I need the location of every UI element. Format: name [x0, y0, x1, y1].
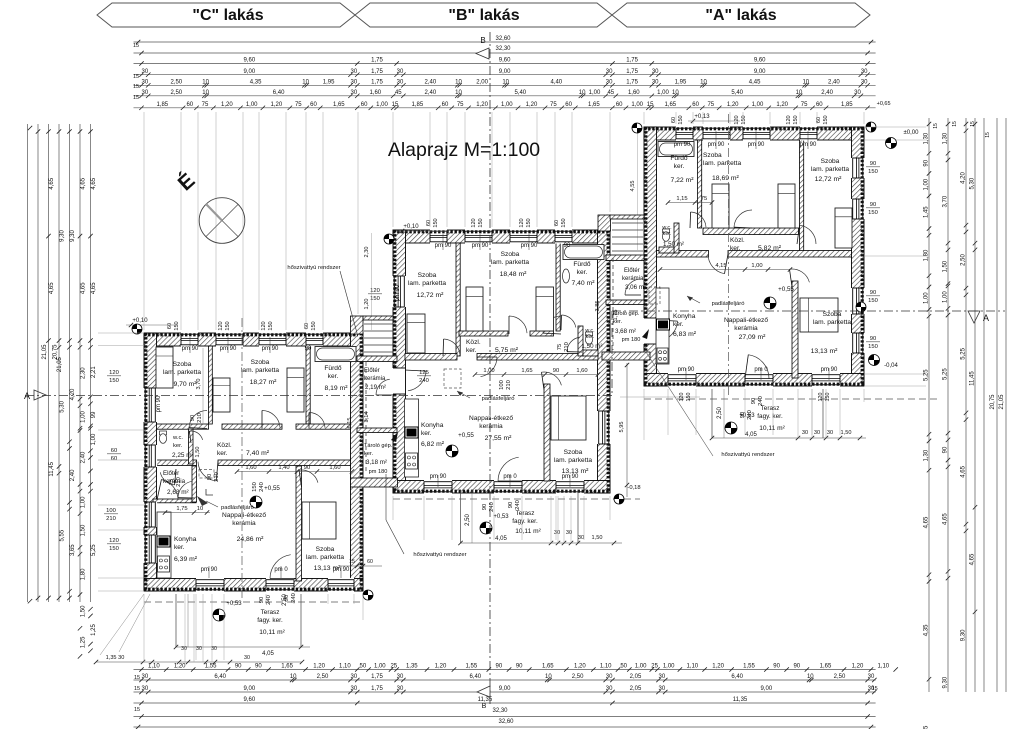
svg-text:1,55: 1,55	[205, 664, 217, 670]
svg-text:1,65: 1,65	[542, 664, 554, 670]
svg-text:Közl.: Közl.	[730, 237, 745, 244]
svg-text:Konyha: Konyha	[673, 313, 696, 320]
svg-text:1,80: 1,80	[924, 249, 930, 261]
svg-text:4,65: 4,65	[943, 513, 949, 525]
svg-text:10,11 m²: 10,11 m²	[759, 425, 785, 432]
svg-text:10: 10	[202, 90, 209, 96]
svg-text:1,00: 1,00	[501, 102, 513, 108]
svg-text:90: 90	[793, 664, 800, 670]
svg-text:90: 90	[482, 504, 488, 510]
svg-text:90: 90	[924, 159, 930, 166]
svg-text:13,13 m²: 13,13 m²	[811, 348, 839, 355]
svg-text:1,35: 1,35	[406, 664, 418, 670]
svg-text:210: 210	[564, 342, 570, 352]
svg-text:10: 10	[455, 90, 462, 96]
svg-text:30: 30	[606, 69, 613, 75]
svg-text:1,75: 1,75	[626, 80, 638, 86]
svg-text:1,40: 1,40	[278, 465, 289, 471]
svg-text:6,83 m²: 6,83 m²	[673, 331, 697, 338]
svg-text:60: 60	[167, 323, 173, 329]
svg-text:2,21: 2,21	[91, 366, 97, 378]
svg-text:9,60: 9,60	[499, 58, 511, 64]
svg-text:30: 30	[606, 674, 613, 680]
svg-text:75: 75	[707, 102, 714, 108]
svg-text:75: 75	[169, 479, 175, 485]
svg-text:1,20: 1,20	[221, 102, 233, 108]
svg-text:1,50: 1,50	[195, 447, 201, 458]
svg-text:12,72 m²: 12,72 m²	[417, 292, 445, 299]
svg-text:1,50 m²: 1,50 m²	[582, 343, 603, 350]
svg-text:kerámia: kerámia	[232, 520, 256, 527]
svg-text:kerámia: kerámia	[364, 376, 386, 382]
svg-text:30: 30	[868, 686, 875, 692]
svg-text:1,20: 1,20	[476, 102, 488, 108]
svg-text:1,75: 1,75	[371, 69, 383, 75]
svg-text:3,68 m²: 3,68 m²	[615, 328, 636, 335]
svg-text:kerámia: kerámia	[734, 325, 758, 332]
svg-text:1,00: 1,00	[246, 102, 258, 108]
svg-text:pm 0: pm 0	[754, 367, 768, 373]
svg-text:9,60: 9,60	[244, 697, 256, 703]
svg-text:9,60: 9,60	[244, 58, 256, 64]
svg-text:4,05: 4,05	[495, 536, 507, 542]
svg-text:6,15: 6,15	[347, 418, 353, 429]
svg-text:5,82 m²: 5,82 m²	[758, 245, 782, 252]
svg-text:1,25: 1,25	[91, 624, 97, 636]
svg-text:240: 240	[266, 595, 272, 605]
svg-text:9,00: 9,00	[754, 69, 766, 75]
svg-text:lam. parketta: lam. parketta	[163, 369, 201, 376]
svg-text:30: 30	[142, 80, 149, 86]
svg-text:ker.: ker.	[328, 373, 339, 380]
svg-text:60: 60	[616, 102, 623, 108]
svg-text:1,20: 1,20	[776, 102, 788, 108]
svg-text:15: 15	[134, 686, 140, 692]
svg-text:90: 90	[496, 664, 503, 670]
svg-text:15: 15	[134, 707, 140, 713]
svg-text:±0,00: ±0,00	[904, 130, 920, 136]
svg-text:4,35: 4,35	[250, 80, 262, 86]
svg-text:90: 90	[508, 502, 514, 508]
svg-text:fagy. ker.: fagy. ker.	[757, 413, 783, 420]
svg-text:pm 0: pm 0	[274, 567, 288, 573]
svg-text:Előtér: Előtér	[163, 470, 179, 477]
svg-text:+0,53: +0,53	[226, 601, 242, 607]
svg-text:15: 15	[133, 74, 139, 80]
svg-text:240: 240	[419, 378, 429, 384]
svg-text:1,20: 1,20	[727, 102, 739, 108]
svg-text:7,40 m²: 7,40 m²	[571, 280, 595, 287]
svg-text:10: 10	[807, 674, 814, 680]
svg-text:120: 120	[679, 393, 685, 402]
svg-text:pm 90: pm 90	[430, 474, 447, 480]
svg-text:Nappali-étkező: Nappali-étkező	[469, 415, 513, 422]
svg-text:30: 30	[142, 686, 149, 692]
svg-text:4,65: 4,65	[924, 516, 930, 528]
svg-text:-0,18: -0,18	[627, 485, 640, 491]
svg-text:15: 15	[133, 84, 139, 90]
svg-text:210: 210	[106, 516, 116, 522]
svg-text:9,70 m²: 9,70 m²	[173, 381, 197, 388]
svg-text:30: 30	[868, 674, 875, 680]
svg-text:2,30: 2,30	[364, 247, 370, 258]
svg-text:1,00: 1,00	[589, 90, 601, 96]
svg-text:30: 30	[578, 535, 584, 541]
svg-text:1,95: 1,95	[323, 80, 335, 86]
svg-text:12,72 m²: 12,72 m²	[815, 176, 843, 183]
svg-text:90: 90	[870, 336, 876, 342]
svg-text:3,70: 3,70	[943, 195, 949, 207]
svg-text:lam. parketta: lam. parketta	[241, 367, 279, 374]
svg-text:75: 75	[295, 102, 302, 108]
svg-text:1,30: 1,30	[924, 132, 930, 144]
svg-text:1,30: 1,30	[943, 132, 949, 144]
svg-text:60: 60	[304, 323, 310, 329]
svg-text:1,60: 1,60	[628, 90, 640, 96]
svg-text:20,75: 20,75	[53, 344, 59, 360]
svg-text:Szoba: Szoba	[418, 272, 437, 279]
svg-text:30: 30	[142, 674, 149, 680]
svg-text:1,65: 1,65	[820, 664, 832, 670]
svg-text:2,63 m²: 2,63 m²	[167, 489, 189, 496]
svg-text:1,60: 1,60	[245, 465, 256, 471]
svg-text:Szoba: Szoba	[564, 449, 583, 456]
svg-text:1,85: 1,85	[841, 102, 853, 108]
svg-text:60: 60	[111, 456, 117, 462]
svg-text:5,25: 5,25	[943, 368, 949, 380]
svg-text:1,65: 1,65	[521, 368, 532, 374]
svg-text:4,45: 4,45	[749, 80, 761, 86]
svg-text:4,55: 4,55	[630, 181, 636, 192]
svg-text:1,20: 1,20	[313, 664, 325, 670]
svg-text:2,50: 2,50	[317, 674, 329, 680]
svg-text:hőszivattyú rendszer: hőszivattyú rendszer	[721, 452, 774, 458]
svg-text:2,50: 2,50	[170, 90, 182, 96]
svg-text:90: 90	[284, 595, 290, 601]
svg-text:1,00: 1,00	[943, 291, 949, 303]
svg-text:pm 90: pm 90	[472, 243, 489, 249]
svg-text:1,00: 1,00	[483, 368, 494, 374]
svg-text:15: 15	[933, 123, 939, 129]
svg-text:1,20: 1,20	[364, 299, 370, 310]
svg-text:60: 60	[310, 102, 317, 108]
svg-text:6,40: 6,40	[214, 674, 226, 680]
svg-text:75: 75	[550, 102, 557, 108]
svg-text:2,05: 2,05	[630, 686, 642, 692]
svg-text:4,20: 4,20	[70, 388, 76, 400]
svg-text:-0,04: -0,04	[884, 363, 898, 369]
svg-text:60: 60	[565, 102, 572, 108]
svg-text:120: 120	[519, 218, 525, 227]
svg-text:ker.: ker.	[466, 347, 477, 354]
svg-text:30: 30	[606, 80, 613, 86]
svg-text:1,50: 1,50	[592, 535, 603, 541]
svg-text:4,40: 4,40	[550, 80, 562, 86]
svg-text:padlásfeljáró: padlásfeljáró	[221, 505, 254, 511]
svg-text:5,30: 5,30	[60, 400, 66, 412]
svg-text:60: 60	[111, 448, 117, 454]
svg-text:+0,55: +0,55	[458, 432, 474, 439]
svg-text:45: 45	[607, 90, 614, 96]
svg-text:Fürdő: Fürdő	[670, 155, 688, 162]
svg-text:210: 210	[506, 380, 512, 390]
svg-text:90: 90	[259, 597, 265, 603]
svg-text:1,00: 1,00	[657, 90, 669, 96]
svg-text:15: 15	[133, 43, 139, 49]
svg-text:30: 30	[554, 530, 560, 536]
svg-text:150: 150	[561, 218, 567, 227]
svg-text:90: 90	[870, 161, 876, 167]
svg-text:fagy. ker.: fagy. ker.	[257, 617, 283, 624]
svg-text:1,75: 1,75	[371, 58, 383, 64]
svg-text:pm 180: pm 180	[369, 469, 388, 475]
svg-text:1,75: 1,75	[626, 69, 638, 75]
svg-text:Szoba: Szoba	[251, 359, 270, 366]
svg-text:4,65: 4,65	[81, 177, 87, 189]
svg-text:pm 90: pm 90	[395, 284, 401, 301]
svg-text:ker.: ker.	[364, 451, 373, 457]
svg-text:30: 30	[861, 80, 868, 86]
svg-text:100: 100	[106, 508, 116, 514]
svg-text:90: 90	[255, 664, 262, 670]
svg-text:75: 75	[801, 102, 808, 108]
svg-text:3,65: 3,65	[70, 544, 76, 556]
svg-text:11,45: 11,45	[970, 371, 976, 386]
svg-text:ker.: ker.	[674, 163, 685, 170]
svg-text:2,40: 2,40	[425, 90, 437, 96]
svg-text:90: 90	[564, 243, 571, 249]
svg-text:1,00: 1,00	[91, 433, 97, 445]
svg-text:30: 30	[397, 674, 404, 680]
svg-text:1,75: 1,75	[371, 686, 383, 692]
svg-text:10: 10	[796, 90, 803, 96]
svg-text:ker.: ker.	[663, 231, 672, 237]
svg-text:1,65: 1,65	[588, 102, 600, 108]
svg-text:1,20: 1,20	[526, 102, 538, 108]
svg-text:10: 10	[700, 80, 707, 86]
svg-text:150: 150	[252, 482, 258, 492]
svg-text:9,30: 9,30	[961, 629, 967, 641]
svg-text:Közl.: Közl.	[217, 442, 232, 449]
svg-text:2,40: 2,40	[81, 451, 87, 463]
svg-text:1,10: 1,10	[339, 664, 351, 670]
svg-text:1,60: 1,60	[369, 90, 381, 96]
svg-text:1,00: 1,00	[635, 664, 647, 670]
svg-text:9,30: 9,30	[60, 230, 66, 242]
svg-text:Közl.: Közl.	[466, 339, 481, 346]
svg-text:150: 150	[478, 218, 484, 227]
svg-text:Szoba: Szoba	[821, 158, 840, 165]
svg-text:30: 30	[854, 90, 861, 96]
svg-text:1,10: 1,10	[600, 664, 612, 670]
svg-text:1,30: 1,30	[924, 449, 930, 461]
svg-text:lam. parketta: lam. parketta	[703, 160, 741, 167]
svg-text:pm 0: pm 0	[503, 474, 517, 480]
svg-text:1,20: 1,20	[852, 664, 864, 670]
svg-text:4,35: 4,35	[924, 624, 930, 636]
svg-text:30: 30	[652, 69, 659, 75]
svg-text:120: 120	[261, 321, 267, 330]
svg-text:4,65: 4,65	[49, 177, 55, 189]
svg-text:+0,10: +0,10	[132, 318, 148, 324]
svg-text:Fürdő: Fürdő	[324, 365, 342, 372]
svg-text:1,20: 1,20	[435, 664, 447, 670]
svg-text:+0,13: +0,13	[694, 114, 710, 120]
svg-text:1,20: 1,20	[712, 664, 724, 670]
svg-text:pm 90: pm 90	[201, 567, 218, 573]
svg-text:ker.: ker.	[421, 430, 432, 437]
svg-text:30: 30	[142, 90, 149, 96]
svg-text:50: 50	[360, 664, 367, 670]
svg-text:7,22 m²: 7,22 m²	[670, 177, 694, 184]
svg-text:pm 90: pm 90	[435, 243, 452, 249]
svg-text:1,10: 1,10	[877, 664, 889, 670]
svg-text:4,65: 4,65	[961, 465, 967, 477]
svg-text:27,55 m²: 27,55 m²	[485, 435, 513, 442]
svg-text:1,60: 1,60	[329, 465, 340, 471]
svg-text:3,14: 3,14	[364, 412, 370, 423]
svg-text:210: 210	[197, 413, 203, 423]
svg-text:90: 90	[235, 664, 242, 670]
svg-text:10: 10	[197, 506, 203, 512]
svg-text:30: 30	[397, 686, 404, 692]
svg-text:6,40: 6,40	[731, 674, 743, 680]
svg-text:10: 10	[545, 674, 552, 680]
svg-text:20,75: 20,75	[990, 394, 996, 410]
svg-text:5,95: 5,95	[619, 422, 625, 433]
svg-text:8,19 m²: 8,19 m²	[324, 385, 348, 392]
svg-text:Nappali-étkező: Nappali-étkező	[724, 317, 768, 324]
svg-text:lam. parketta: lam. parketta	[811, 166, 849, 173]
svg-text:60: 60	[367, 559, 373, 565]
svg-text:15: 15	[985, 132, 991, 138]
svg-text:1,00: 1,00	[751, 263, 762, 269]
svg-text:10: 10	[290, 674, 297, 680]
svg-text:15: 15	[952, 121, 958, 127]
svg-text:240: 240	[259, 482, 265, 492]
svg-text:9,30: 9,30	[943, 676, 949, 688]
svg-text:1,00: 1,00	[81, 496, 87, 508]
svg-text:1,00: 1,00	[924, 292, 930, 304]
svg-text:210: 210	[176, 477, 182, 487]
svg-text:120: 120	[218, 321, 224, 330]
svg-text:pm 90: pm 90	[708, 142, 725, 148]
svg-text:2,25 m²: 2,25 m²	[172, 452, 194, 459]
svg-text:99: 99	[91, 411, 97, 418]
svg-text:Konyha: Konyha	[174, 536, 197, 543]
svg-text:15: 15	[133, 95, 139, 101]
svg-text:30: 30	[652, 80, 659, 86]
svg-text:9,00: 9,00	[499, 686, 511, 692]
svg-text:1,50: 1,50	[81, 605, 87, 617]
svg-text:10: 10	[579, 90, 586, 96]
svg-text:75: 75	[457, 102, 464, 108]
svg-text:11,45: 11,45	[49, 461, 55, 476]
svg-text:120: 120	[786, 115, 792, 124]
svg-text:60: 60	[692, 102, 699, 108]
svg-text:240: 240	[758, 396, 764, 406]
svg-text:90: 90	[943, 446, 949, 453]
svg-text:lam. parketta: lam. parketta	[554, 457, 592, 464]
svg-text:10: 10	[202, 80, 209, 86]
svg-text:1,75: 1,75	[626, 58, 638, 64]
svg-text:1,00: 1,00	[663, 664, 675, 670]
svg-text:2,50: 2,50	[170, 80, 182, 86]
svg-text:90: 90	[207, 474, 213, 480]
svg-text:30: 30	[244, 655, 250, 661]
svg-text:7,40 m²: 7,40 m²	[246, 450, 270, 457]
svg-text:60: 60	[186, 102, 193, 108]
svg-text:120: 120	[109, 538, 119, 544]
svg-text:5,40: 5,40	[731, 90, 743, 96]
svg-text:30: 30	[196, 646, 202, 652]
svg-text:Fürdő: Fürdő	[573, 261, 591, 268]
svg-text:2,00: 2,00	[476, 80, 488, 86]
svg-text:1,00: 1,00	[374, 664, 386, 670]
svg-text:+0,55: +0,55	[264, 485, 280, 492]
svg-text:4,15: 4,15	[715, 263, 726, 269]
svg-text:Szoba: Szoba	[703, 152, 722, 159]
svg-text:75: 75	[557, 344, 563, 350]
svg-text:30: 30	[659, 686, 666, 692]
svg-text:ker.: ker.	[173, 443, 183, 449]
svg-text:150: 150	[868, 298, 878, 304]
svg-text:Tároló gép.: Tároló gép.	[364, 443, 393, 449]
svg-text:25: 25	[390, 664, 397, 670]
svg-text:30: 30	[351, 686, 358, 692]
svg-text:30: 30	[397, 69, 404, 75]
svg-text:100: 100	[499, 380, 505, 390]
svg-text:30: 30	[802, 430, 808, 436]
svg-text:150: 150	[868, 210, 878, 216]
svg-text:30: 30	[814, 430, 820, 436]
svg-text:5,25: 5,25	[91, 544, 97, 556]
svg-text:18,48 m²: 18,48 m²	[500, 271, 528, 278]
svg-text:2,50: 2,50	[465, 514, 471, 526]
svg-text:5,25: 5,25	[924, 369, 930, 381]
svg-text:B: B	[480, 36, 485, 45]
svg-text:240: 240	[747, 410, 753, 420]
svg-text:18,27 m²: 18,27 m²	[250, 379, 278, 386]
svg-text:pm 90: pm 90	[333, 567, 350, 573]
svg-text:1,50: 1,50	[841, 430, 852, 436]
svg-text:90: 90	[190, 415, 196, 421]
svg-text:2,50: 2,50	[572, 674, 584, 680]
svg-text:90: 90	[305, 346, 312, 352]
svg-text:50: 50	[620, 664, 627, 670]
svg-text:pm 90: pm 90	[521, 243, 538, 249]
svg-text:9,60: 9,60	[754, 58, 766, 64]
svg-text:1,00: 1,00	[376, 102, 388, 108]
svg-text:lam. parketta: lam. parketta	[306, 554, 344, 561]
svg-text:2,50: 2,50	[717, 407, 723, 419]
svg-text:24,86 m²: 24,86 m²	[237, 536, 265, 543]
svg-text:1,45: 1,45	[924, 206, 930, 218]
svg-text:10: 10	[672, 90, 679, 96]
svg-text:15: 15	[970, 121, 976, 127]
svg-text:+0,65: +0,65	[877, 101, 891, 107]
svg-text:1,75: 1,75	[371, 80, 383, 86]
svg-text:32,60: 32,60	[498, 719, 514, 725]
svg-text:pm 90: pm 90	[220, 346, 237, 352]
svg-text:"C" lakás: "C" lakás	[192, 7, 263, 24]
svg-text:lam. parketta: lam. parketta	[813, 319, 851, 326]
svg-text:1,85: 1,85	[412, 102, 424, 108]
svg-text:2,50: 2,50	[834, 674, 846, 680]
svg-text:2,40: 2,40	[70, 469, 76, 481]
svg-text:10: 10	[502, 80, 509, 86]
svg-text:21,05: 21,05	[42, 344, 48, 360]
